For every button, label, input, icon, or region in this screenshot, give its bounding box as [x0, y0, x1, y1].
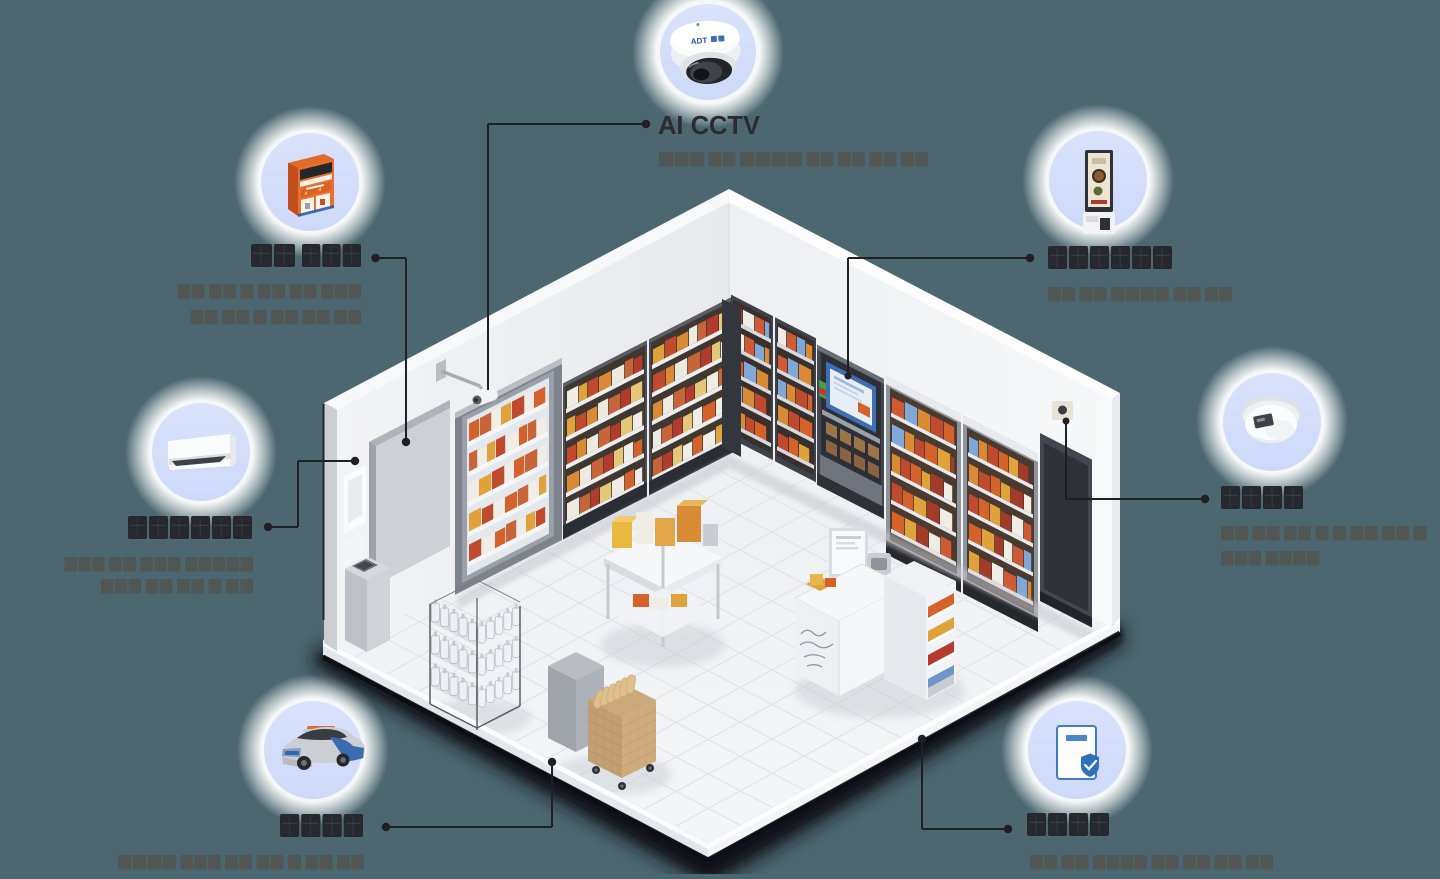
svg-text:AI CCTV: AI CCTV: [658, 112, 760, 140]
svg-text:ADT: ADT: [690, 36, 707, 46]
